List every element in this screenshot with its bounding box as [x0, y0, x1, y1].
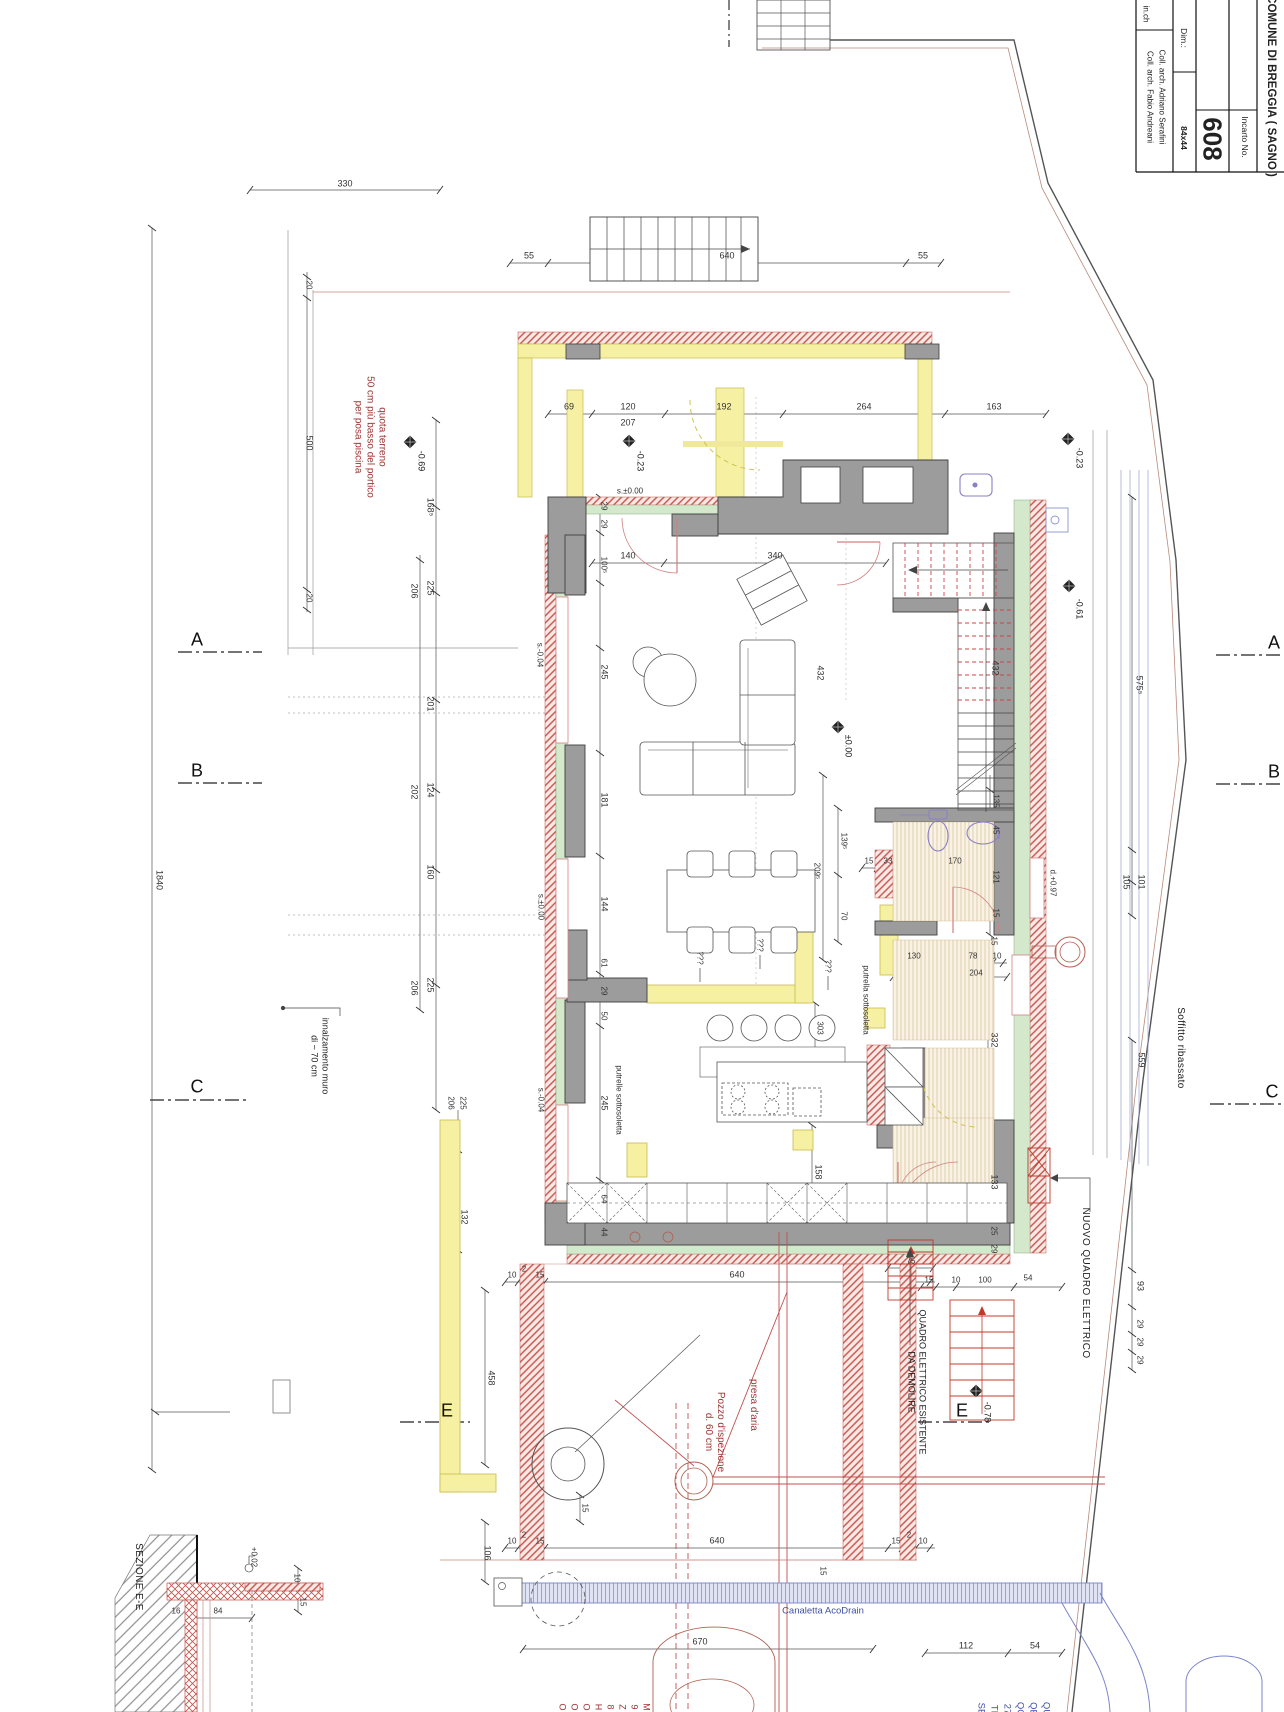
titleblock-collaborator-2: Coll. arch. Fabio Andreani — [1146, 51, 1155, 143]
wardrobe-niche — [863, 467, 913, 503]
titleblock-web-fragment: in.ch — [1142, 6, 1151, 23]
bar-stools — [707, 1015, 835, 1041]
titleblock-dim-value: 84x44 — [1179, 126, 1189, 150]
titleblock-collaborator-1: Coll. arch. Adriano Serafini — [1158, 50, 1167, 145]
floor-plan-sheet: 3302050020quota terreno 50 cm più basso … — [0, 0, 1284, 1712]
titleblock-dim-label: Dim.: — [1179, 28, 1189, 48]
entry-stair — [590, 217, 758, 281]
upper-site-stair — [757, 0, 830, 50]
drain-box — [1046, 508, 1068, 532]
titleblock-municipality: COMUNE DI BREGGIA ( SAGNO ) — [1265, 0, 1277, 177]
canaletta-acodrain-channel — [508, 1583, 1102, 1603]
presa-aria-duct — [676, 1403, 688, 1712]
kitchen-island — [700, 1047, 867, 1122]
coffee-tables — [633, 647, 696, 706]
wardrobe-niche — [801, 467, 840, 503]
floor-hatch — [893, 822, 994, 1221]
dining-table — [667, 870, 815, 932]
entry-door-arc — [622, 518, 677, 573]
dimension-lines — [148, 186, 1136, 1657]
titleblock-incarto-label: Incarto No. — [1240, 116, 1250, 158]
titleblock-incarto-number: 608 — [1197, 117, 1228, 160]
hall-cabinets — [885, 1048, 923, 1125]
section-detail-ee — [115, 1380, 323, 1712]
portico-room-outline — [544, 1264, 843, 1560]
kitchen-counter — [567, 1183, 1007, 1223]
tilted-cabinet — [737, 555, 807, 625]
existing-wall-hatch-top — [518, 332, 932, 344]
floor-plan-drawing — [0, 0, 1284, 1712]
stairs-exterior-red — [950, 1300, 1014, 1420]
